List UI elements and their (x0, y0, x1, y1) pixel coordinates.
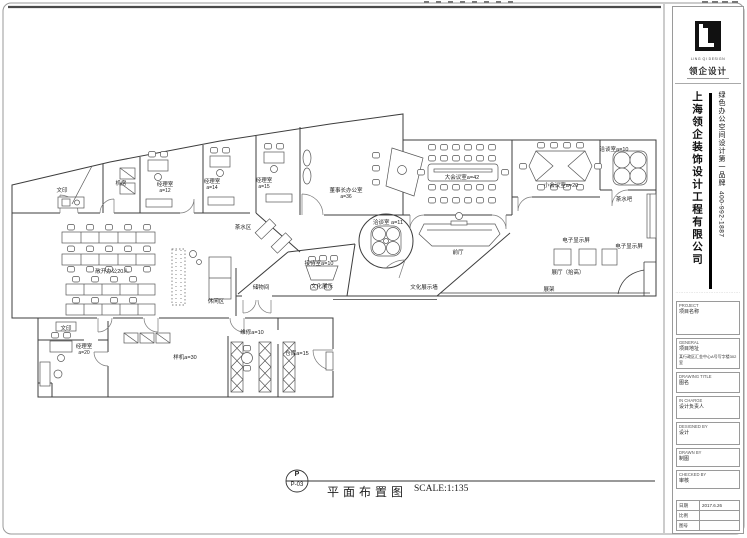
company-slogan: 绿色办公空间设计第一品牌 (716, 91, 726, 187)
logo-section: LING QI DESIGN 领企设计 (673, 21, 743, 79)
company-phone: 400-992-1887 (718, 191, 725, 237)
titleblock-field: DRAWING TITLE图名 (676, 372, 740, 393)
divider (675, 83, 741, 84)
meta-row: 比例 (677, 511, 739, 521)
fine-print: ······································· (673, 291, 743, 295)
titleblock-field: GENERAL项目地址某行政区汇金中心A号写字楼302室 (676, 338, 740, 369)
drawing-scale: SCALE:1:135 (414, 484, 468, 494)
title-block: LING QI DESIGN 领企设计 上海领企装饰设计工程有限公司 绿色办公空… (672, 6, 744, 534)
company-logo-icon (695, 21, 721, 51)
meta-row: 图号 (677, 521, 739, 531)
drawing-sheet: 文印机房经理室a=12经理室a=14经理室a=15茶水区敞开办公20人董事长办公… (0, 0, 747, 538)
title-block-fields: PROJECT项目名称GENERAL项目地址某行政区汇金中心A号写字楼302室D… (676, 301, 740, 492)
titleblock-field: DRAWN BY制图 (676, 448, 740, 467)
titleblock-field: DESIGNED BY设计 (676, 422, 740, 445)
titleblock-field: PROJECT项目名称 (676, 301, 740, 335)
company-section: 上海领企装饰设计工程有限公司 绿色办公空间设计第一品牌 400-992-1887 (673, 91, 743, 293)
bubble-letter: P (295, 471, 300, 478)
drawing-number: P-03 (291, 482, 304, 488)
drawing-title: 平面布置图 (327, 483, 407, 500)
company-name: 上海领企装饰设计工程有限公司 (690, 91, 705, 293)
doors (60, 190, 628, 371)
titleblock-field: CHECKED BY审核 (676, 470, 740, 489)
title-block-meta-table: 日期2017.6.26比例图号 (676, 500, 740, 531)
floor-plan-drawing (0, 0, 747, 538)
divider-bar (709, 93, 712, 289)
logo-name: 领企设计 (687, 65, 729, 79)
titleblock-field: IN CHARGE设计负责人 (676, 396, 740, 419)
meta-row: 日期2017.6.26 (677, 501, 739, 511)
sheet-border (3, 3, 744, 534)
furniture (40, 143, 656, 393)
